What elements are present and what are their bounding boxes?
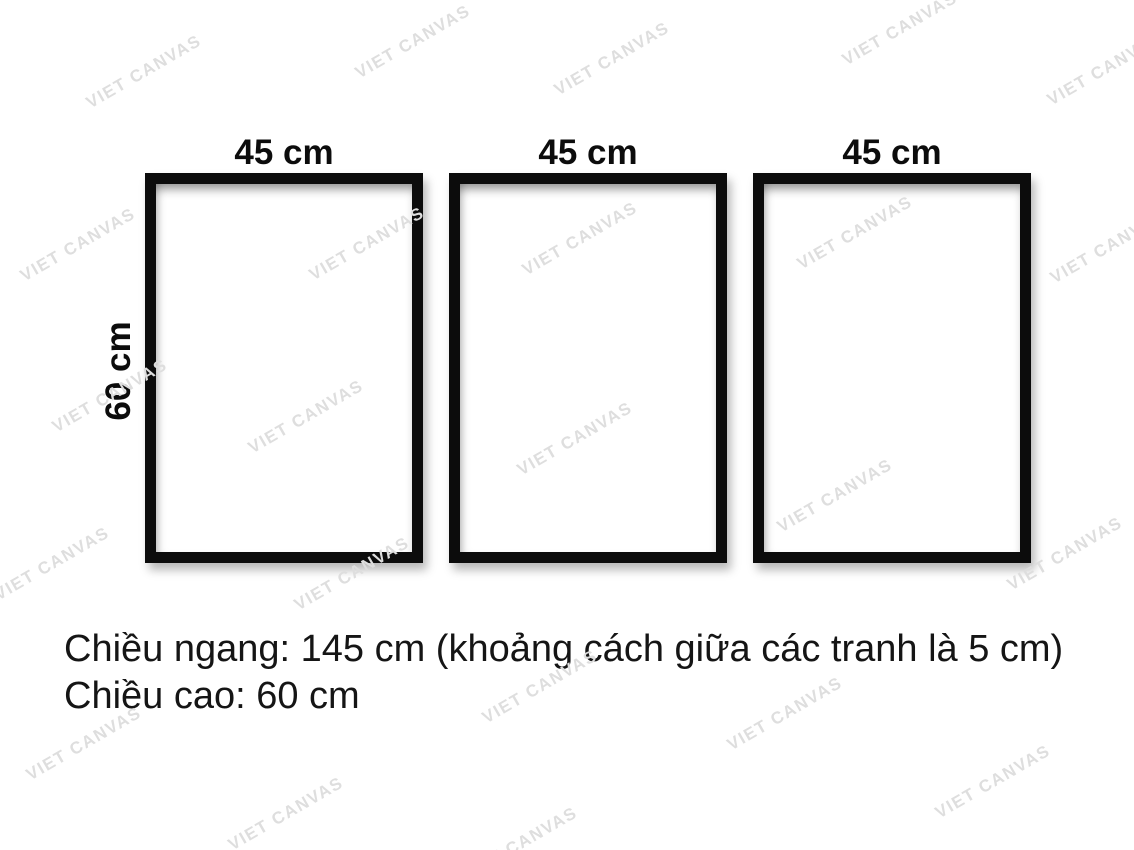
frame-1-width-label: 45 cm bbox=[145, 133, 423, 173]
watermark-text: VIET CANVAS bbox=[1034, 198, 1134, 295]
notes-block: Chiều ngang: 145 cm (khoảng cách giữa cá… bbox=[64, 626, 1063, 720]
frame-2-width-label: 45 cm bbox=[449, 133, 727, 173]
watermark-text: VIET CANVAS bbox=[339, 0, 488, 91]
watermark-text: VIET CANVAS bbox=[212, 765, 361, 850]
frame-3-width-label: 45 cm bbox=[753, 133, 1031, 173]
watermark-text: VIET CANVAS bbox=[70, 23, 219, 120]
frame-2 bbox=[449, 173, 727, 563]
watermark-text: VIET CANVAS bbox=[919, 733, 1068, 830]
watermark-text: VIET CANVAS bbox=[0, 515, 126, 612]
height-label: 60 cm bbox=[97, 291, 141, 451]
frame-3 bbox=[753, 173, 1031, 563]
watermark-text: VIET CANVAS bbox=[446, 795, 595, 850]
watermark-text: VIET CANVAS bbox=[826, 0, 975, 78]
frame-1 bbox=[145, 173, 423, 563]
watermark-text: VIET CANVAS bbox=[4, 196, 153, 293]
watermark-text: VIET CANVAS bbox=[1031, 20, 1134, 117]
note-line-vertical: Chiều cao: 60 cm bbox=[64, 673, 1063, 720]
watermark-text: VIET CANVAS bbox=[538, 10, 687, 107]
dimension-diagram: VIET CANVASVIET CANVASVIET CANVASVIET CA… bbox=[0, 0, 1134, 850]
note-line-horizontal: Chiều ngang: 145 cm (khoảng cách giữa cá… bbox=[64, 626, 1063, 673]
